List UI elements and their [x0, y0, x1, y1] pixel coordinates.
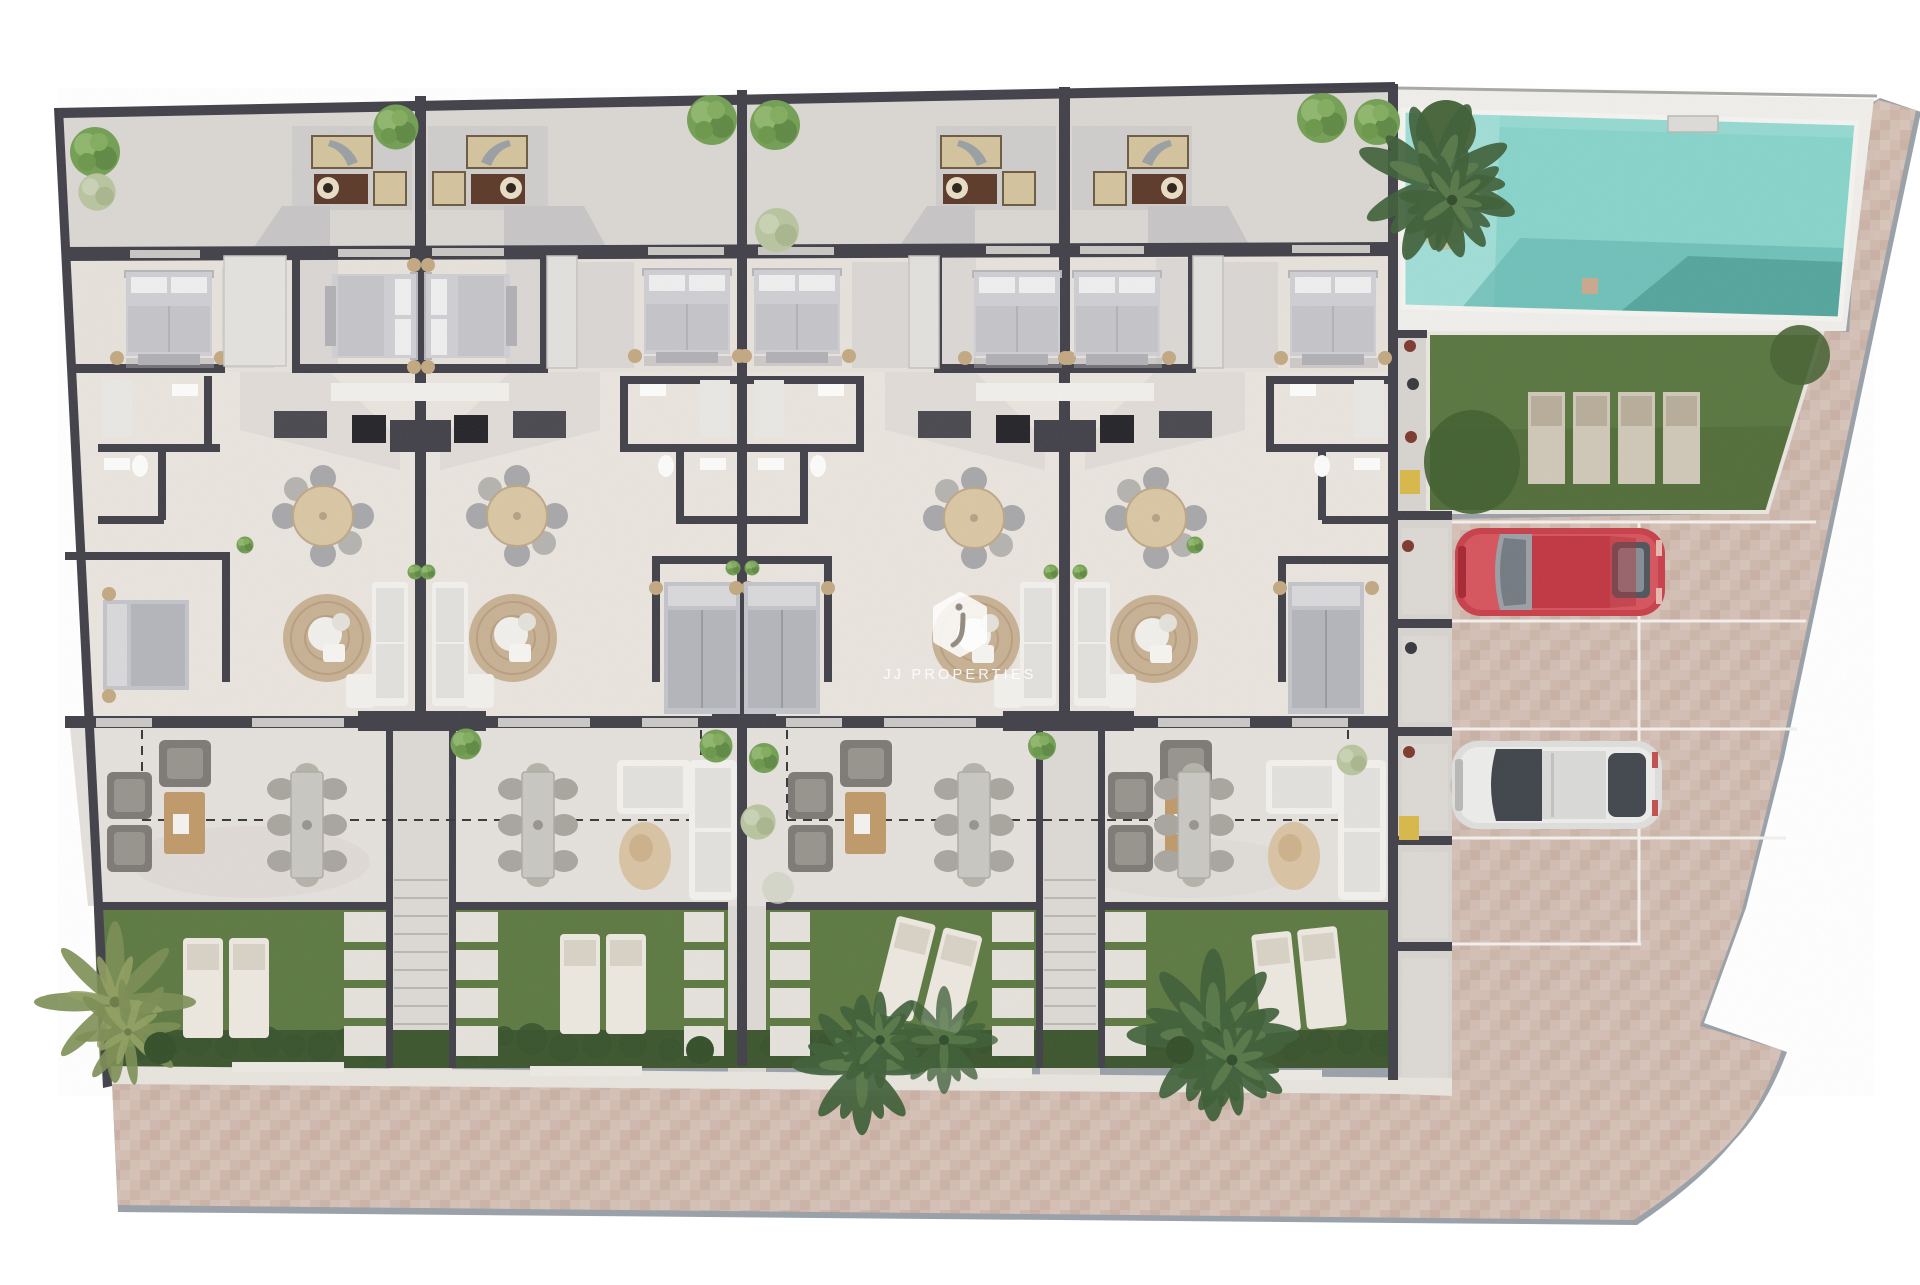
svg-text:REAL ESTATE: REAL ESTATE	[924, 687, 995, 694]
svg-text:JJ PROPERTIES: JJ PROPERTIES	[883, 667, 1036, 683]
